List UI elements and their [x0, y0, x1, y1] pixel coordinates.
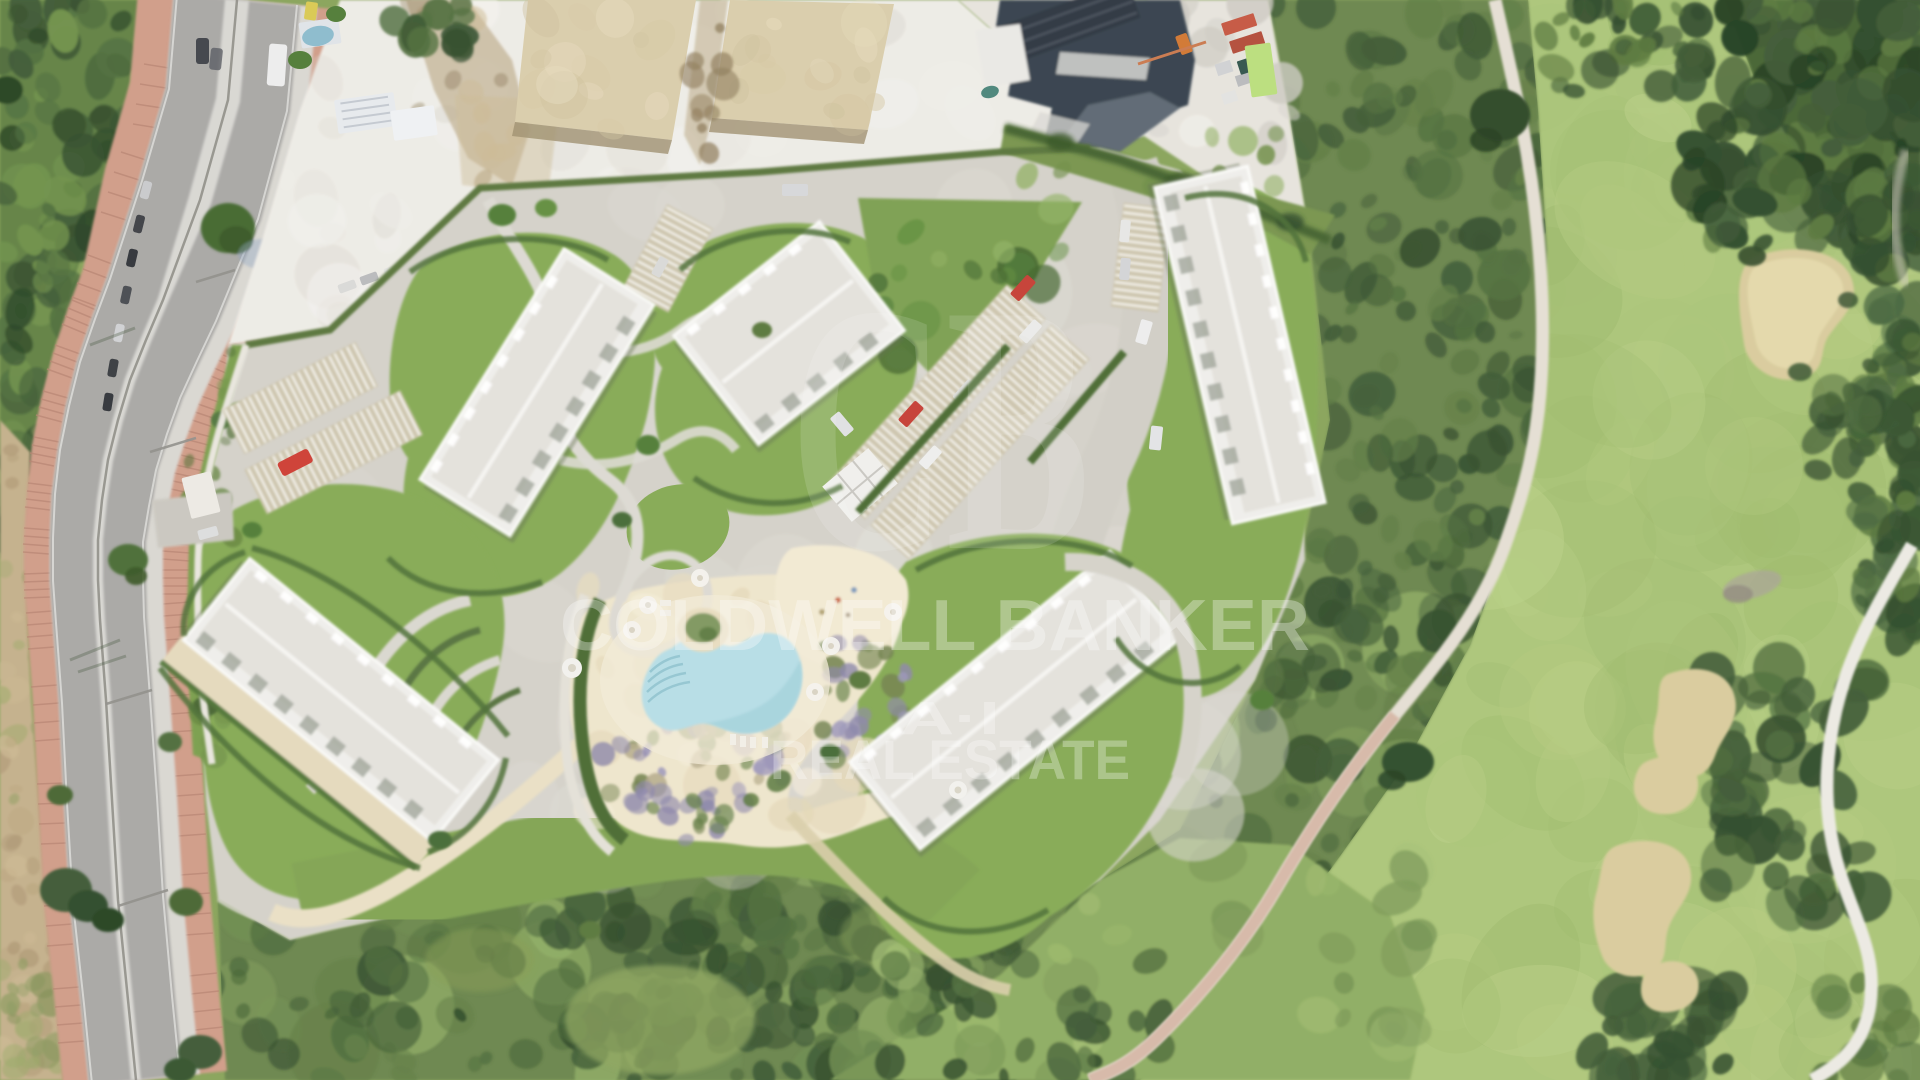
svg-text:REAL ESTATE: REAL ESTATE — [770, 728, 1130, 791]
svg-text:COLDWELL BANKER: COLDWELL BANKER — [560, 586, 1310, 666]
svg-text:CB: CB — [790, 232, 1090, 625]
